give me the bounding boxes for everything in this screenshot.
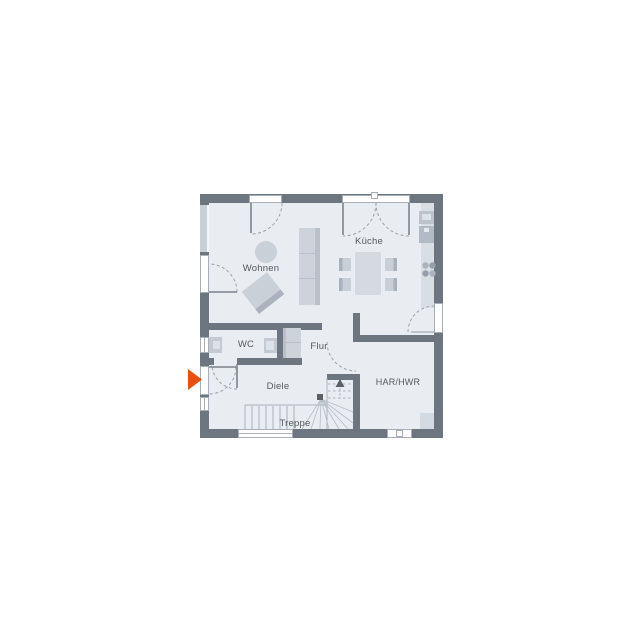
burner: [422, 262, 428, 268]
door-leaves: [209, 203, 434, 388]
stair-winder: [321, 399, 339, 429]
stair-newel-post: [317, 394, 323, 400]
plan-linework: [0, 0, 636, 636]
room-label-har-hwr: HAR/HWR: [366, 377, 430, 388]
floorplan-canvas: Wohnen Küche WC Flur Diele HAR/HWR Trepp…: [0, 0, 636, 636]
door-swing-arc: [343, 203, 376, 236]
door-swing-arc: [209, 367, 236, 394]
room-label-kueche: Küche: [344, 236, 394, 247]
room-label-wc: WC: [230, 339, 262, 350]
room-label-wohnen: Wohnen: [233, 263, 289, 274]
burner: [429, 262, 435, 268]
room-label-treppe: Treppe: [271, 418, 319, 429]
stair-winder: [320, 399, 321, 429]
entrance-direction-arrow: [188, 369, 202, 390]
room-label-flur: Flur: [299, 341, 339, 352]
door-swing-arc: [408, 306, 434, 332]
burner: [429, 270, 435, 276]
door-swing-arcs: [209, 203, 434, 394]
burner: [422, 270, 428, 276]
stair-winder: [321, 399, 353, 423]
door-swing-arc: [376, 203, 409, 236]
door-swing-arc: [251, 203, 282, 234]
room-label-diele: Diele: [256, 381, 300, 392]
cooktop-burners: [422, 262, 435, 276]
stairs-up-arrow: [336, 379, 345, 387]
